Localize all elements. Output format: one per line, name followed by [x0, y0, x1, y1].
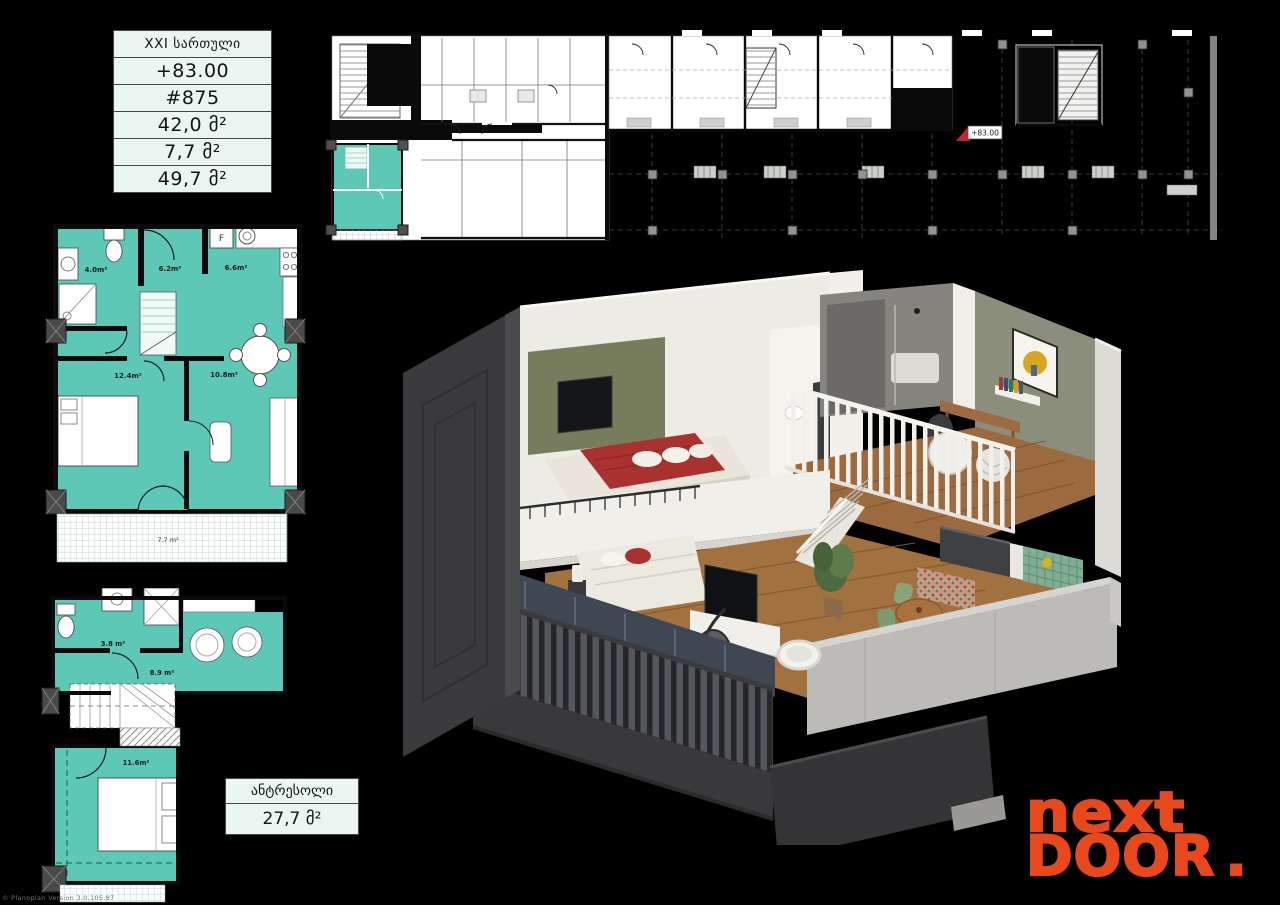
floor-label: XXI სართული — [113, 30, 272, 58]
exterior-wall-left — [403, 307, 520, 757]
svg-text:12.4m²: 12.4m² — [114, 372, 142, 380]
bathroom-3d — [820, 283, 953, 417]
floor-plan-main: F — [40, 222, 310, 567]
mezzanine-area: 27,7 მ² — [225, 804, 359, 835]
nextdoor-logo: next door . — [1026, 790, 1226, 878]
roof-stair-core — [1016, 45, 1102, 125]
logo-dot: . — [1225, 834, 1247, 878]
shower-icon — [59, 284, 96, 324]
mezzanine-title: ანტრესოლი — [225, 778, 359, 804]
svg-text:F: F — [219, 234, 224, 244]
floor-plan-mezzanine: 3.8 m² 8.9 m² 11.6m² — [40, 588, 310, 905]
toilet-icon — [57, 604, 75, 638]
shower-icon — [144, 588, 179, 625]
apartment-3d-render — [395, 265, 1125, 845]
software-watermark: © Planoplan Version 3.0.105.87 — [2, 894, 115, 902]
sink-icon — [239, 228, 255, 244]
logo-line2: door — [1026, 834, 1215, 878]
inner-area: 42,0 მ² — [113, 112, 272, 139]
shelf — [183, 599, 255, 612]
svg-text:6.2m²: 6.2m² — [159, 265, 182, 273]
unit-info-card: XXI სართული +83.00 #875 42,0 მ² 7,7 მ² 4… — [113, 30, 272, 193]
mezzanine-info-card: ანტრესოლი 27,7 მ² — [225, 778, 359, 835]
bed-icon — [98, 778, 178, 851]
bathtub-3d — [778, 641, 820, 669]
summer-area: 7,7 მ² — [113, 139, 272, 166]
svg-text:3.8 m²: 3.8 m² — [101, 640, 125, 648]
site-plan-upper-row — [609, 36, 952, 130]
elevation-marker: +83.00 — [956, 126, 1002, 141]
plan-sheet: XXI სართული +83.00 #875 42,0 მ² 7,7 მ² 4… — [0, 0, 1280, 905]
toilet-icon — [104, 228, 124, 262]
svg-text:+83.00: +83.00 — [971, 129, 999, 138]
highlighted-unit — [333, 144, 402, 240]
stairs-icon — [140, 292, 176, 355]
washer-icon — [58, 248, 78, 280]
svg-text:8.9 m²: 8.9 m² — [150, 669, 174, 677]
elevation-value: +83.00 — [113, 58, 272, 85]
svg-text:10.8m²: 10.8m² — [210, 371, 238, 379]
site-plan-left-wing — [326, 32, 609, 240]
svg-text:7.7 m²: 7.7 m² — [157, 536, 179, 544]
bed-icon — [58, 396, 138, 466]
base-plinth — [770, 717, 1006, 845]
balcony: 7.7 m² — [57, 514, 287, 562]
svg-text:4.0m²: 4.0m² — [85, 266, 108, 274]
svg-text:6.6m²: 6.6m² — [225, 264, 248, 272]
total-area: 49,7 მ² — [113, 166, 272, 193]
site-plan: +83.00 — [322, 30, 1232, 242]
svg-text:11.6m²: 11.6m² — [123, 759, 150, 767]
unit-number: #875 — [113, 85, 272, 112]
